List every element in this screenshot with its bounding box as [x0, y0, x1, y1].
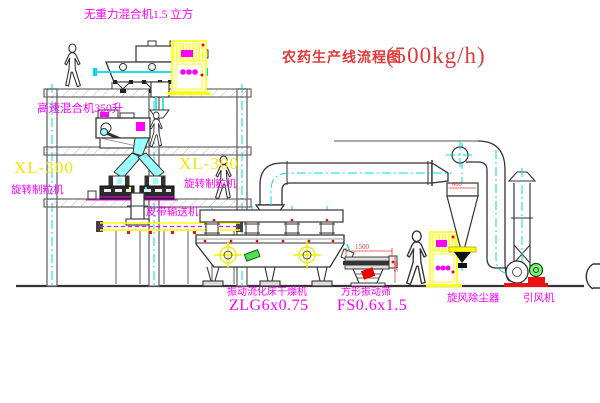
- diagram-title-capacity: (500kg/h): [386, 44, 486, 67]
- label-granulator-left-model: XL-300: [14, 159, 74, 176]
- fluid-bed-dryer-machine: [196, 206, 354, 286]
- duct-centerline: [271, 173, 452, 205]
- label-granulator-right-name: 旋转制粒机: [184, 180, 237, 191]
- label-gravity-mixer: 无重力混合机1.5 立方: [84, 10, 193, 22]
- worker-top-floor: [65, 44, 81, 87]
- label-fan: 引风机: [523, 294, 555, 305]
- control-cabinet-top: [167, 41, 211, 95]
- worker-ground: [407, 231, 426, 284]
- induced-draft-fan-machine: [504, 261, 548, 287]
- dryer-exhaust-duct: [256, 160, 448, 216]
- label-granulator-left-name: 旋转制粒机: [11, 186, 64, 197]
- label-granulator-right-model: XL-300: [179, 155, 239, 172]
- dim-1500: 1500: [355, 243, 370, 251]
- diagram-title: 农药生产线流程图: [282, 52, 402, 66]
- edge-equipment-arc: [586, 264, 600, 289]
- vibrating-screen-machine: 1500 500: [343, 243, 400, 286]
- label-cyclone: 旋风除尘器: [447, 294, 500, 305]
- granulator-hoppers: [109, 176, 165, 186]
- dim-600: 600: [452, 181, 462, 188]
- dim-500: 500: [393, 262, 400, 272]
- label-dryer-model: ZLG6x0.75: [229, 298, 309, 314]
- label-belt-conveyor: 皮带输送机: [146, 208, 199, 219]
- flow-diagram-canvas: 1500 500 600: [0, 0, 600, 403]
- label-high-speed-mixer: 高速混合机350升: [37, 104, 123, 116]
- control-cabinet-right: [426, 232, 462, 287]
- label-screen-model: FS0.6x1.5: [337, 298, 407, 314]
